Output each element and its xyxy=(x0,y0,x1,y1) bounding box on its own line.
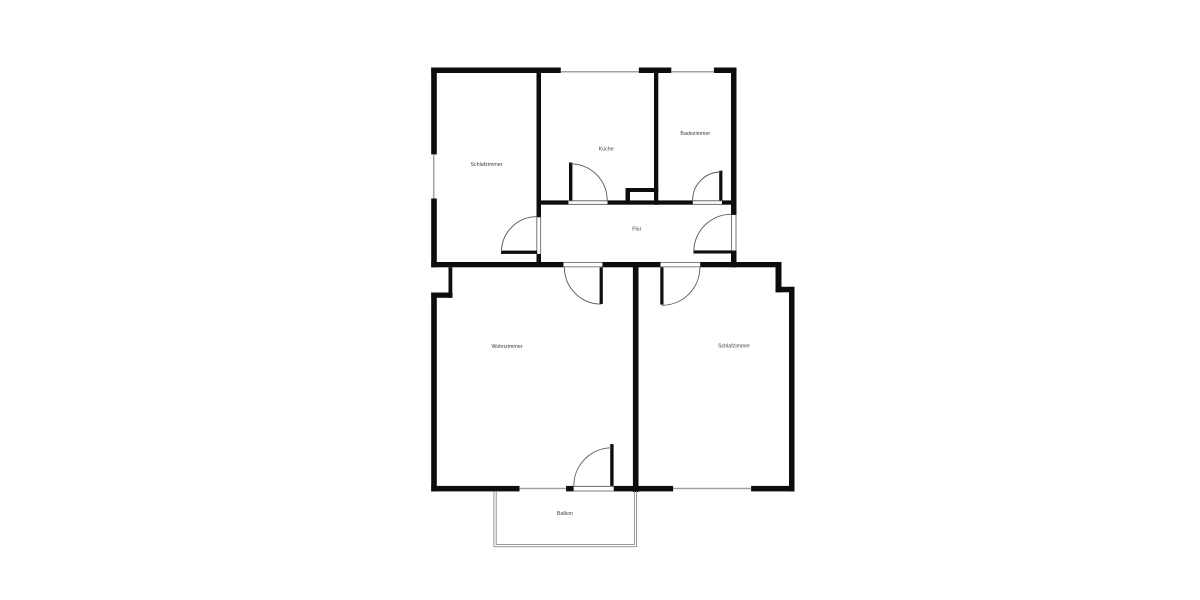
svg-text:Badezimmer: Badezimmer xyxy=(680,131,710,137)
svg-text:Schlafzimmer: Schlafzimmer xyxy=(718,344,750,350)
svg-text:Balkon: Balkon xyxy=(557,511,573,517)
svg-text:Flur: Flur xyxy=(632,227,641,233)
svg-text:Schlafzimmer: Schlafzimmer xyxy=(470,162,502,168)
svg-text:Küche: Küche xyxy=(599,147,614,153)
svg-text:Wohnzimmer: Wohnzimmer xyxy=(491,344,522,350)
